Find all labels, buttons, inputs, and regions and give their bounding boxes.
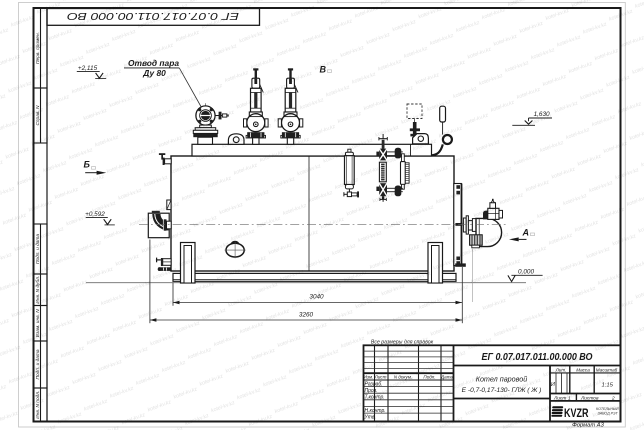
svg-text:3260: 3260 [299,311,314,318]
svg-text:Подп.: Подп. [423,375,435,380]
svg-text:0,000: 0,000 [518,268,534,275]
svg-text:2: 2 [611,395,615,401]
svg-text:Листов: Листов [580,395,599,401]
svg-text:Лист: Лист [374,375,387,380]
svg-text:И: И [551,382,555,388]
svg-text:Е -0,7-0,17-130- ГЛЖ ( Ж ): Е -0,7-0,17-130- ГЛЖ ( Ж ) [462,387,542,394]
svg-text:Изм.: Изм. [364,375,374,380]
svg-text:Дата: Дата [440,375,454,380]
svg-text:Б: Б [84,160,91,170]
svg-text:Н.контр.: Н.контр. [365,408,386,414]
svg-text:Разраб.: Разраб. [365,382,383,388]
svg-text:Масса: Масса [576,367,590,372]
svg-text:Утв.: Утв. [365,415,376,421]
svg-text:KVZR: KVZR [564,406,589,420]
